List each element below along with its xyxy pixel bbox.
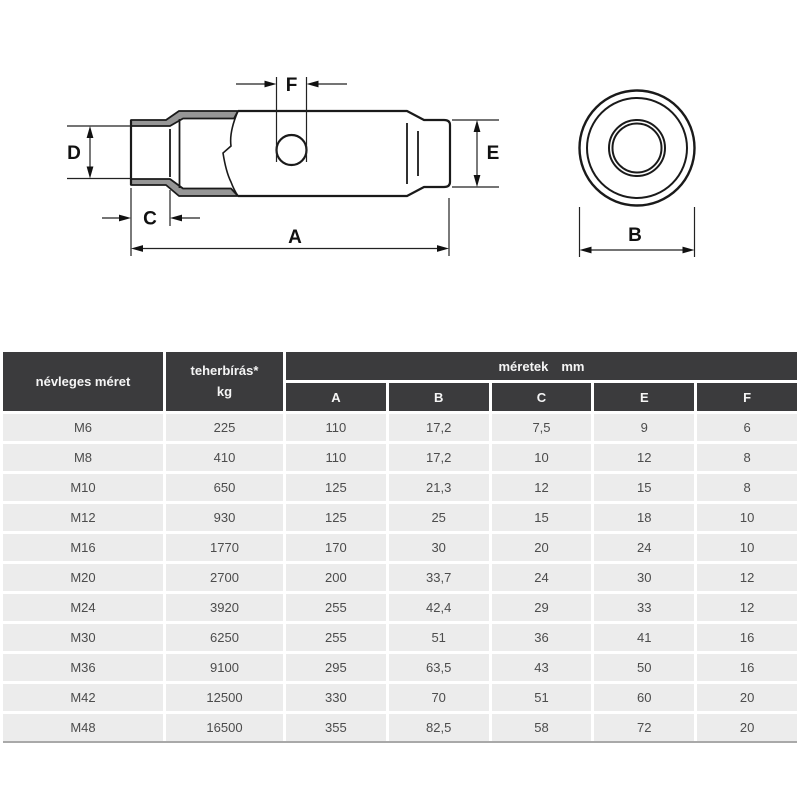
table-cell-b: 51: [389, 624, 489, 651]
table-cell-a: 110: [286, 444, 386, 471]
spec-table: névleges méret teherbírás* kg méretek mm…: [3, 352, 797, 743]
table-cell-b: 70: [389, 684, 489, 711]
table-cell-load: 225: [166, 414, 283, 441]
dim-d: D: [67, 126, 131, 179]
table-cell-c: 29: [492, 594, 592, 621]
table-cell-load: 6250: [166, 624, 283, 651]
dim-label-e: E: [487, 143, 500, 164]
table-cell-f: 8: [697, 444, 797, 471]
table-cell-load: 410: [166, 444, 283, 471]
table-cell-c: 15: [492, 504, 592, 531]
end-view-outer-circle: [580, 91, 695, 206]
table-cell-a: 170: [286, 534, 386, 561]
side-view: [131, 111, 450, 196]
dim-label-d: D: [67, 143, 81, 164]
table-cell-f: 16: [697, 624, 797, 651]
table-cell-e: 30: [594, 564, 694, 591]
table-cell-a: 330: [286, 684, 386, 711]
table-cell-c: 43: [492, 654, 592, 681]
table-cell-load: 930: [166, 504, 283, 531]
table-cell-a: 255: [286, 624, 386, 651]
table-cell-load: 12500: [166, 684, 283, 711]
table-cell-size: M20: [3, 564, 163, 591]
table-cell-b: 30: [389, 534, 489, 561]
table-cell-f: 20: [697, 684, 797, 711]
break-line: [223, 111, 238, 196]
header-col-a: A: [286, 383, 386, 411]
table-cell-b: 25: [389, 504, 489, 531]
table-cell-load: 9100: [166, 654, 283, 681]
section-wall-bottom: [131, 179, 238, 196]
table-cell-c: 36: [492, 624, 592, 651]
table-cell-e: 60: [594, 684, 694, 711]
table-cell-f: 16: [697, 654, 797, 681]
table-cell-load: 2700: [166, 564, 283, 591]
table-cell-load: 3920: [166, 594, 283, 621]
table-cell-size: M8: [3, 444, 163, 471]
table-cell-size: M48: [3, 714, 163, 741]
dim-label-a: A: [288, 227, 302, 248]
header-col-f: F: [697, 383, 797, 411]
table-cell-size: M24: [3, 594, 163, 621]
table-cell-e: 24: [594, 534, 694, 561]
table-cell-c: 12: [492, 474, 592, 501]
table-cell-load: 1770: [166, 534, 283, 561]
table-cell-e: 50: [594, 654, 694, 681]
center-hole: [277, 135, 307, 165]
table-cell-c: 20: [492, 534, 592, 561]
table-cell-size: M30: [3, 624, 163, 651]
table-cell-e: 33: [594, 594, 694, 621]
table-cell-e: 12: [594, 444, 694, 471]
table-cell-f: 20: [697, 714, 797, 741]
table-cell-e: 18: [594, 504, 694, 531]
table-cell-b: 63,5: [389, 654, 489, 681]
dim-label-b: B: [628, 225, 642, 246]
table-cell-e: 9: [594, 414, 694, 441]
table-cell-a: 355: [286, 714, 386, 741]
header-dimensions-group: méretek mm: [286, 352, 797, 380]
dim-label-f: F: [286, 75, 298, 96]
table-cell-f: 10: [697, 534, 797, 561]
table-cell-f: 10: [697, 504, 797, 531]
dim-e: E: [452, 120, 499, 187]
table-cell-b: 17,2: [389, 444, 489, 471]
table-cell-f: 12: [697, 594, 797, 621]
table-cell-c: 10: [492, 444, 592, 471]
table-cell-a: 110: [286, 414, 386, 441]
table-cell-e: 72: [594, 714, 694, 741]
table-cell-a: 125: [286, 474, 386, 501]
table-cell-f: 12: [697, 564, 797, 591]
table-cell-b: 33,7: [389, 564, 489, 591]
header-col-b: B: [389, 383, 489, 411]
dim-b: B: [580, 207, 695, 257]
header-load-line1: teherbírás*: [191, 361, 259, 382]
section-wall-top: [131, 111, 238, 126]
table-cell-e: 41: [594, 624, 694, 651]
table-cell-size: M42: [3, 684, 163, 711]
header-col-e: E: [594, 383, 694, 411]
header-load-line2: kg: [217, 382, 232, 403]
table-cell-b: 42,4: [389, 594, 489, 621]
table-cell-e: 15: [594, 474, 694, 501]
table-cell-f: 8: [697, 474, 797, 501]
end-view: [580, 91, 695, 206]
table-cell-size: M36: [3, 654, 163, 681]
table-cell-c: 7,5: [492, 414, 592, 441]
header-dims-word1: méretek: [499, 359, 549, 374]
header-load-capacity: teherbírás* kg: [166, 352, 283, 411]
table-cell-a: 295: [286, 654, 386, 681]
table-cell-load: 650: [166, 474, 283, 501]
table-cell-c: 58: [492, 714, 592, 741]
table-cell-a: 200: [286, 564, 386, 591]
table-cell-c: 24: [492, 564, 592, 591]
table-cell-load: 16500: [166, 714, 283, 741]
table-cell-c: 51: [492, 684, 592, 711]
technical-drawing: D C A F: [0, 0, 800, 340]
dim-label-c: C: [143, 209, 157, 230]
table-cell-b: 17,2: [389, 414, 489, 441]
table-cell-size: M16: [3, 534, 163, 561]
header-dims-word2: mm: [561, 359, 584, 374]
table-cell-size: M12: [3, 504, 163, 531]
table-cell-f: 6: [697, 414, 797, 441]
table-cell-a: 125: [286, 504, 386, 531]
dim-a: A: [131, 198, 449, 256]
header-nominal-size: névleges méret: [3, 352, 163, 411]
table-cell-b: 21,3: [389, 474, 489, 501]
table-cell-size: M10: [3, 474, 163, 501]
table-cell-b: 82,5: [389, 714, 489, 741]
header-col-c: C: [492, 383, 592, 411]
dim-c: C: [102, 188, 200, 256]
table-cell-a: 255: [286, 594, 386, 621]
table-cell-size: M6: [3, 414, 163, 441]
